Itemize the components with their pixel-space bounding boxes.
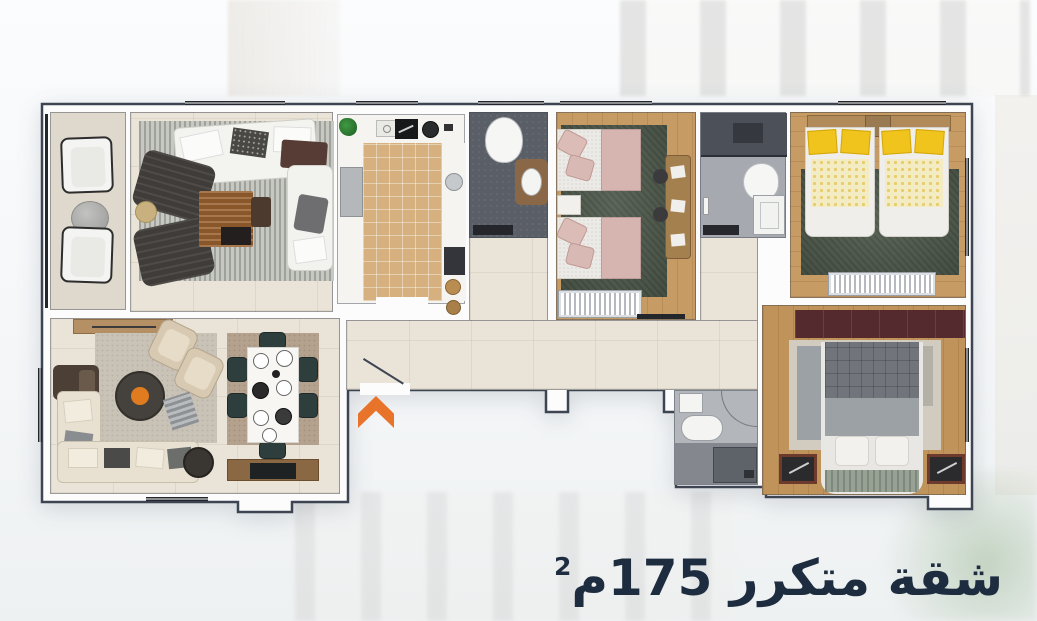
outdoor-chair [60, 226, 114, 284]
hall-1 [469, 238, 548, 322]
twin-bed [557, 217, 641, 279]
desk [665, 155, 691, 259]
room-bathroom-1 [469, 112, 548, 238]
checkered-cushion [230, 127, 269, 158]
room-bedroom-2 [790, 112, 966, 298]
hall-2 [700, 238, 758, 322]
yellow-pillow [807, 129, 838, 155]
room-kitchen [337, 114, 465, 304]
dining-chair [259, 441, 286, 459]
shower [701, 113, 787, 157]
balcony-door-sill [637, 314, 685, 319]
tray [221, 227, 251, 245]
sideboard [227, 459, 319, 481]
corridor [346, 320, 758, 390]
sink [679, 393, 703, 413]
vanity-sink [515, 159, 548, 205]
nightstand [927, 454, 965, 484]
side-table [251, 197, 271, 227]
room-bedroom-1 [556, 112, 696, 320]
pot [445, 279, 461, 295]
shower-tray [713, 447, 757, 483]
window [356, 101, 418, 105]
bench [825, 470, 919, 492]
pan [422, 121, 439, 138]
radiator [559, 291, 641, 317]
wardrobe [795, 310, 965, 338]
radiator [829, 273, 935, 295]
kitchen-counter [441, 143, 466, 301]
pillow [835, 436, 869, 466]
pouf [183, 447, 214, 478]
window [478, 101, 544, 105]
twin-bed [557, 129, 641, 191]
dining-chair [297, 357, 318, 382]
wood-coffee-table [199, 191, 253, 247]
gold-side-table [135, 201, 157, 223]
room-bathroom-3 [674, 390, 758, 485]
window [146, 497, 208, 501]
duvet [825, 398, 919, 436]
outdoor-chair [60, 136, 114, 194]
balcony-rail [45, 114, 48, 308]
floor-plan-poster: شقة متكرر 175م2 [0, 0, 1037, 621]
bath-mat [703, 225, 739, 235]
kitchen-sink-unit [376, 120, 396, 137]
chaise [287, 165, 333, 271]
room-bedroom-3 [762, 305, 966, 495]
dining-chair [297, 393, 318, 418]
stool [653, 169, 668, 184]
plan-title-superscript: 2 [554, 554, 571, 579]
nightstand [557, 195, 581, 215]
shower-tray [753, 195, 785, 235]
yellow-pillow [840, 129, 871, 155]
window [185, 101, 285, 105]
window [965, 158, 969, 256]
sectional-sofa [57, 441, 199, 483]
quilted-blanket [825, 342, 919, 400]
nightstand [779, 454, 817, 484]
switch-plate [444, 124, 453, 131]
round-sink [445, 173, 463, 191]
bath-mat [473, 225, 513, 235]
yellow-pillow [881, 129, 912, 155]
oven [444, 247, 465, 275]
round-coffee-table [115, 371, 165, 421]
kitchen-floor [363, 143, 441, 301]
window [838, 101, 946, 105]
fridge [340, 167, 363, 217]
twin-bed-yellow [879, 127, 949, 237]
window [965, 348, 969, 442]
dining-chair [227, 357, 248, 382]
pot [446, 300, 461, 315]
room-living [130, 112, 333, 312]
tub [681, 415, 723, 441]
window [38, 368, 42, 442]
kitchen-door-gap [376, 297, 428, 305]
plan-title: شقة متكرر 175م2 [554, 550, 1003, 608]
door-swing-arc [721, 391, 757, 427]
double-bed [821, 342, 923, 494]
room-living-dining [50, 318, 340, 494]
room-bathroom-2 [700, 112, 786, 238]
pillow [875, 436, 909, 466]
plan-title-text: شقة متكرر 175م [571, 550, 1003, 608]
shower-faucet [703, 197, 709, 215]
cooktop [395, 119, 418, 139]
dining-chair [227, 393, 248, 418]
window [560, 101, 652, 105]
yellow-pillow [914, 129, 945, 155]
stool [653, 207, 668, 222]
room-balcony [50, 112, 126, 310]
plant [339, 118, 357, 136]
twin-bed-yellow [805, 127, 875, 237]
dining-table [247, 347, 299, 443]
toilet [485, 117, 523, 163]
